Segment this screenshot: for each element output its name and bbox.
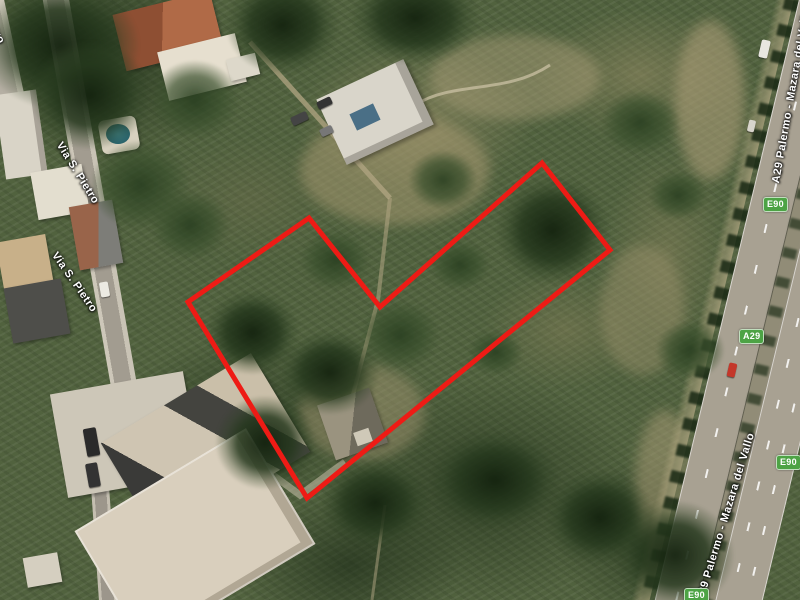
tree: [408, 150, 478, 210]
building-dark-roof: [4, 278, 71, 343]
tree: [495, 175, 610, 285]
tree: [360, 300, 440, 370]
route-badge-e90: E90: [684, 588, 709, 600]
tree: [215, 395, 315, 490]
tree: [30, 40, 150, 150]
tree: [150, 60, 240, 140]
route-badge-e90: E90: [763, 197, 788, 212]
tree: [320, 458, 430, 548]
tree: [150, 190, 230, 260]
tree: [648, 170, 708, 220]
dirt-patch: [675, 20, 745, 180]
route-badge-a29: A29: [739, 329, 764, 344]
building-small: [23, 552, 63, 588]
tree: [655, 320, 725, 380]
tree: [430, 430, 560, 530]
tree: [600, 90, 680, 155]
tree: [468, 330, 523, 375]
tree: [430, 240, 490, 290]
satellite-map[interactable]: Via S. Pietro Via S. Pietro Via S. Pietr…: [0, 0, 800, 600]
route-badge-e90: E90: [776, 455, 800, 470]
tree: [300, 230, 370, 290]
